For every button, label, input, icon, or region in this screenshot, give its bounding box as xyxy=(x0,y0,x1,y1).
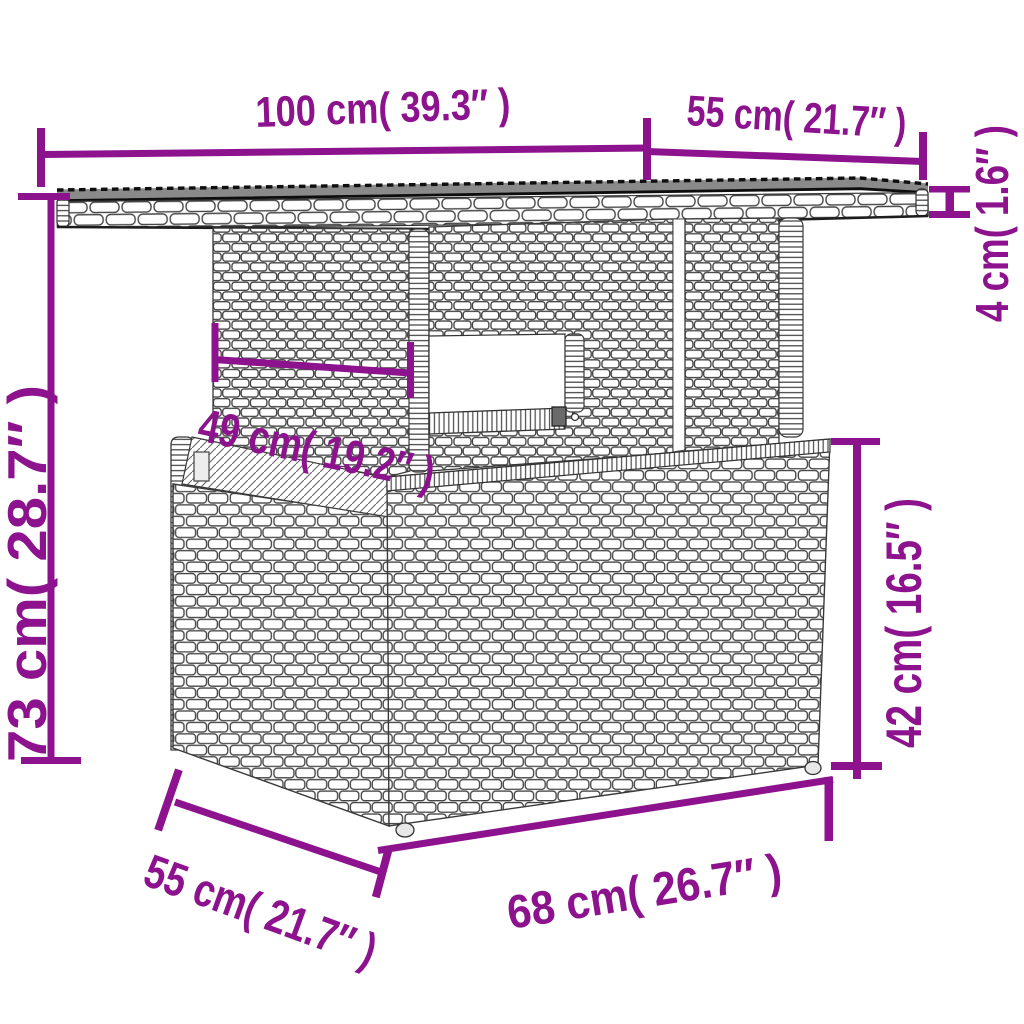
svg-text:55 cm( 21.7″ ): 55 cm( 21.7″ ) xyxy=(685,87,908,148)
svg-text:73 cm( 28.7″ ): 73 cm( 28.7″ ) xyxy=(0,385,58,762)
svg-text:100 cm( 39.3″ ): 100 cm( 39.3″ ) xyxy=(255,80,512,137)
svg-text:4 cm( 1.6″ ): 4 cm( 1.6″ ) xyxy=(966,125,1018,322)
svg-text:42 cm( 16.5″ ): 42 cm( 16.5″ ) xyxy=(876,498,932,748)
svg-text:68 cm( 26.7″ ): 68 cm( 26.7″ ) xyxy=(503,843,785,939)
